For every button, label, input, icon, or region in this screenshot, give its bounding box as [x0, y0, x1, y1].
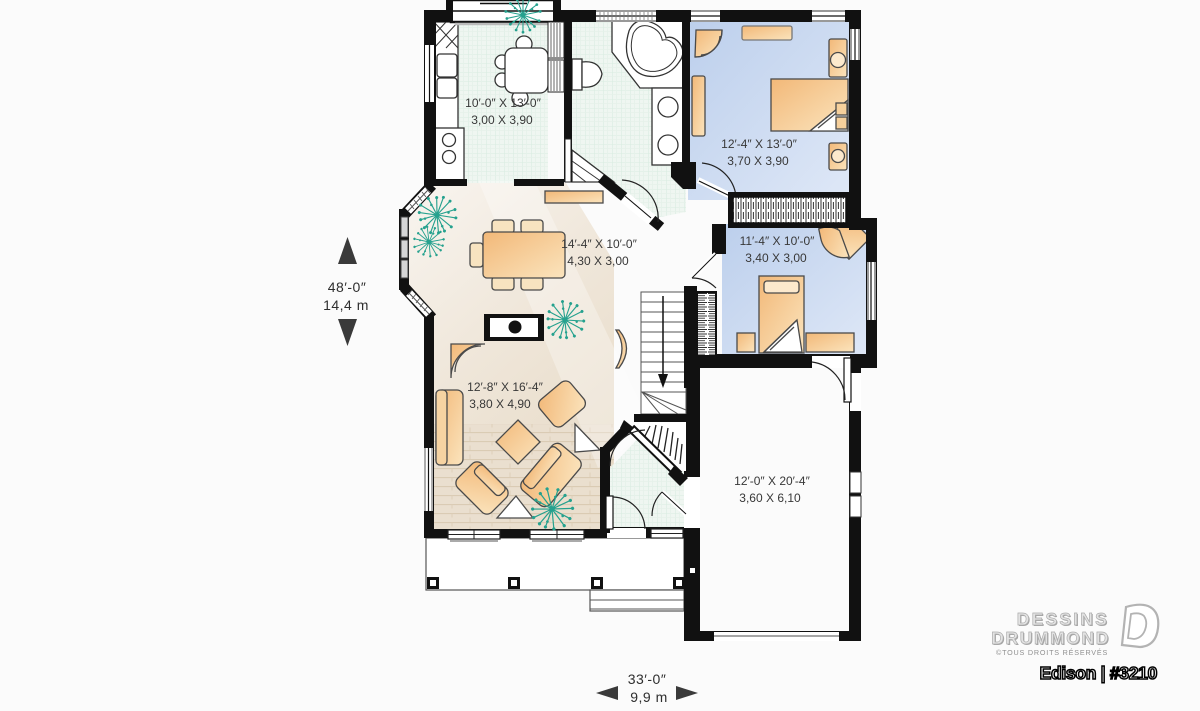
svg-text:3,60 X 6,10: 3,60 X 6,10 [739, 491, 801, 505]
svg-text:4,30 X 3,00: 4,30 X 3,00 [567, 254, 629, 268]
svg-text:12′-0″ X 20′-4″: 12′-0″ X 20′-4″ [734, 474, 810, 488]
svg-text:10′-0″ X 13′-0″: 10′-0″ X 13′-0″ [465, 96, 541, 110]
svg-text:3,00 X 3,90: 3,00 X 3,90 [471, 113, 533, 127]
svg-text:11′-4″ X 10′-0″: 11′-4″ X 10′-0″ [740, 234, 816, 248]
svg-text:©TOUS DROITS RÉSERVÉS: ©TOUS DROITS RÉSERVÉS [996, 648, 1108, 657]
svg-text:14′-4″ X 10′-0″: 14′-4″ X 10′-0″ [561, 237, 637, 251]
svg-text:14,4 m: 14,4 m [323, 297, 369, 313]
svg-text:Edison | #3210: Edison | #3210 [1040, 663, 1158, 683]
svg-text:48′-0″: 48′-0″ [328, 279, 367, 295]
svg-text:3,70 X 3,90: 3,70 X 3,90 [727, 154, 789, 168]
svg-text:33′-0″: 33′-0″ [628, 671, 667, 687]
svg-text:9,9 m: 9,9 m [630, 689, 668, 705]
svg-text:3,40 X 3,00: 3,40 X 3,00 [745, 251, 807, 265]
svg-text:3,80 X 4,90: 3,80 X 4,90 [469, 397, 531, 411]
svg-text:DESSINS: DESSINS [1017, 609, 1109, 629]
svg-text:DRUMMOND: DRUMMOND [991, 628, 1110, 648]
svg-text:12′-4″ X 13′-0″: 12′-4″ X 13′-0″ [721, 137, 797, 151]
svg-text:12′-8″ X 16′-4″: 12′-8″ X 16′-4″ [467, 380, 543, 394]
